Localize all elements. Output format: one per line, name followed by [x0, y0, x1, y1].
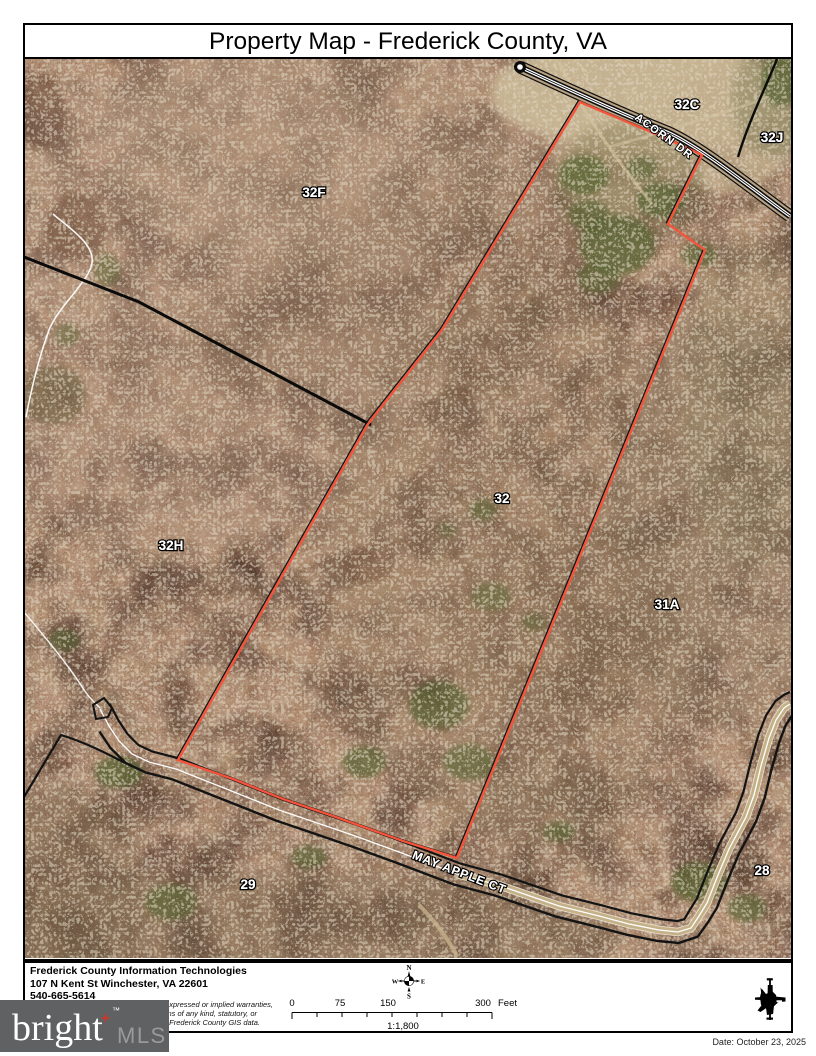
svg-text:150: 150 — [380, 998, 396, 1009]
svg-text:Feet: Feet — [498, 998, 517, 1009]
svg-text:W: W — [392, 979, 399, 986]
svg-text:32J: 32J — [761, 130, 784, 145]
svg-text:75: 75 — [335, 998, 346, 1009]
svg-text:32H: 32H — [159, 538, 184, 553]
svg-text:28: 28 — [754, 863, 770, 878]
svg-text:32C: 32C — [675, 97, 700, 112]
svg-text:N: N — [406, 964, 411, 972]
svg-text:0: 0 — [289, 998, 294, 1009]
svg-text:1:1,800: 1:1,800 — [387, 1021, 419, 1031]
svg-text:32: 32 — [494, 491, 509, 506]
svg-text:31A: 31A — [655, 597, 680, 612]
svg-text:300: 300 — [475, 998, 491, 1009]
svg-text:29: 29 — [240, 877, 255, 892]
svg-text:E: E — [421, 979, 425, 986]
svg-text:32F: 32F — [302, 185, 325, 200]
